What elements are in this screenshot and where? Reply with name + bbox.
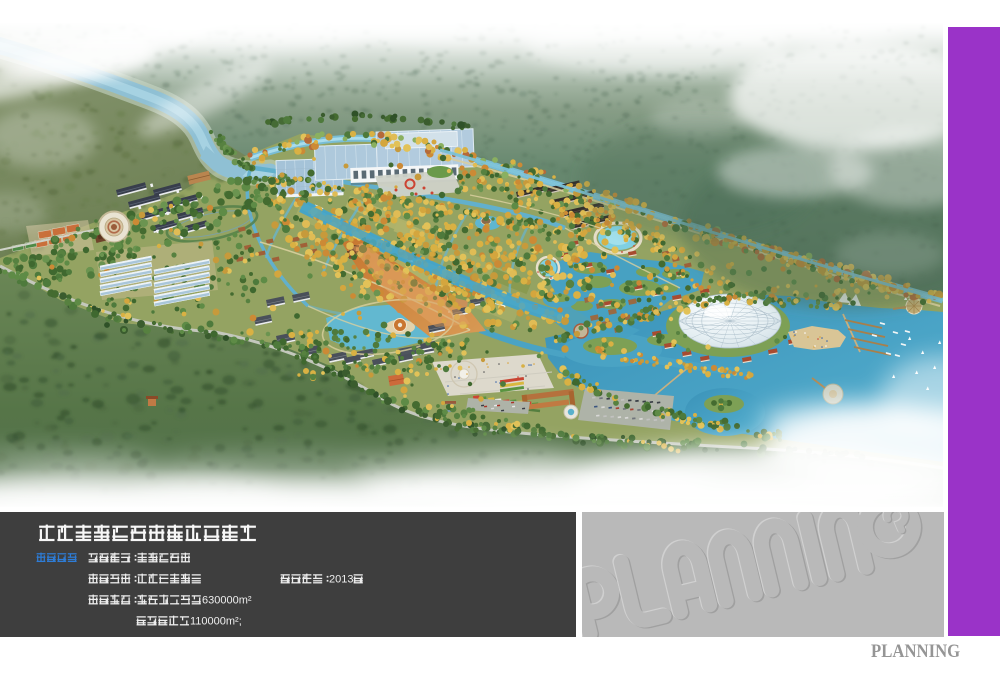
- svg-text:2013: 2013: [329, 574, 353, 586]
- svg-text:630000m²: 630000m²: [202, 595, 252, 607]
- svg-text:110000m²;: 110000m²;: [190, 616, 242, 628]
